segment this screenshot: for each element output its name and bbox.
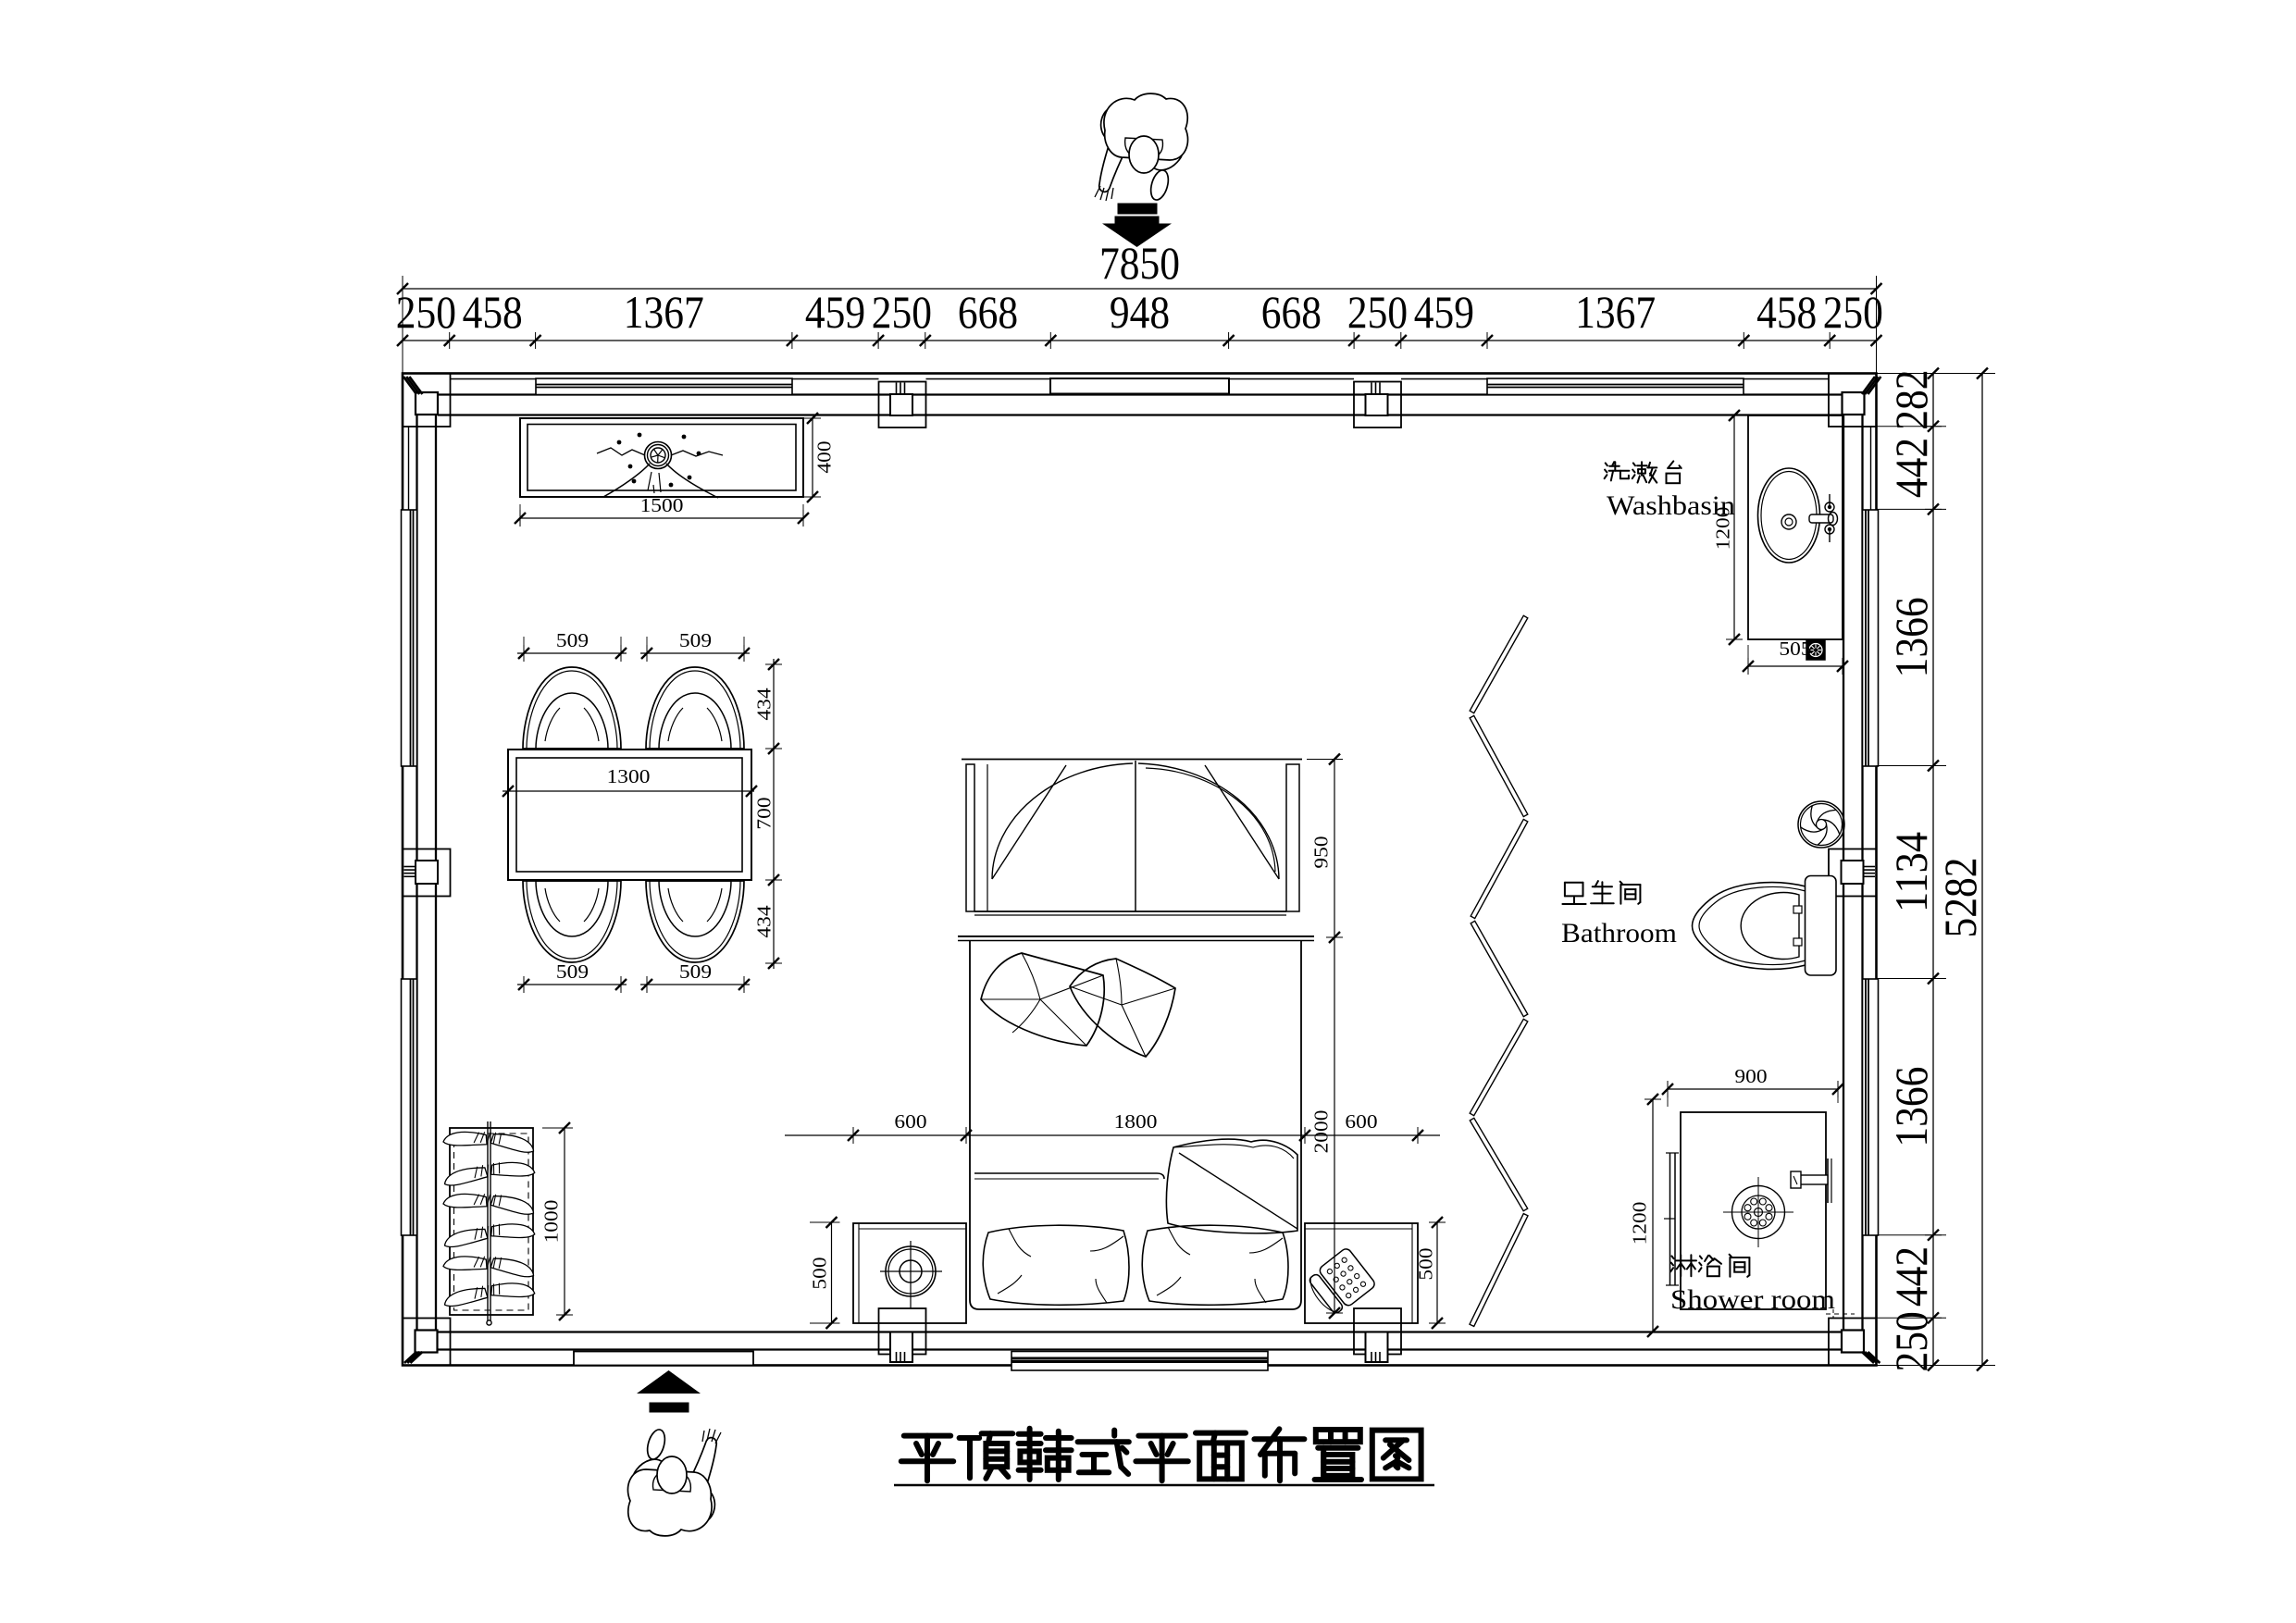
svg-text:509: 509 [679, 960, 712, 983]
svg-text:1300: 1300 [607, 765, 651, 787]
svg-text:500: 500 [809, 1257, 831, 1289]
svg-text:1200: 1200 [1629, 1202, 1651, 1245]
svg-text:282: 282 [1885, 370, 1937, 430]
svg-text:434: 434 [753, 688, 776, 721]
svg-text:950: 950 [1310, 836, 1333, 868]
svg-text:600: 600 [894, 1110, 926, 1133]
svg-text:459: 459 [1414, 286, 1474, 338]
svg-text:1367: 1367 [1575, 286, 1656, 338]
svg-text:Bathroom: Bathroom [1561, 918, 1677, 948]
svg-text:458: 458 [1756, 286, 1817, 338]
svg-text:700: 700 [753, 797, 776, 829]
svg-text:434: 434 [753, 905, 776, 938]
svg-text:250: 250 [396, 286, 456, 338]
svg-text:1000: 1000 [540, 1200, 563, 1244]
svg-text:458: 458 [463, 286, 523, 338]
svg-text:668: 668 [1261, 286, 1322, 338]
svg-text:509: 509 [556, 629, 589, 651]
svg-text:1500: 1500 [640, 494, 684, 516]
svg-text:1200: 1200 [1712, 507, 1734, 551]
svg-text:442: 442 [1885, 1246, 1937, 1307]
svg-text:459: 459 [805, 286, 865, 338]
svg-text:250: 250 [1823, 286, 1883, 338]
svg-text:1367: 1367 [624, 286, 704, 338]
svg-text:900: 900 [1734, 1065, 1767, 1087]
svg-text:1800: 1800 [1114, 1110, 1158, 1133]
svg-text:442: 442 [1885, 438, 1937, 498]
svg-text:948: 948 [1110, 286, 1170, 338]
svg-text:600: 600 [1345, 1110, 1377, 1133]
svg-text:509: 509 [679, 629, 712, 651]
svg-text:505: 505 [1779, 638, 1811, 660]
svg-text:1366: 1366 [1885, 1067, 1937, 1147]
svg-text:250: 250 [1347, 286, 1408, 338]
svg-text:509: 509 [556, 960, 589, 983]
svg-text:5282: 5282 [1934, 858, 1986, 938]
svg-text:Shower room: Shower room [1670, 1284, 1835, 1315]
svg-text:668: 668 [958, 286, 1018, 338]
svg-text:400: 400 [813, 440, 836, 473]
svg-text:2000: 2000 [1310, 1110, 1333, 1154]
svg-text:1134: 1134 [1885, 832, 1937, 912]
svg-text:1366: 1366 [1885, 597, 1937, 677]
svg-text:250: 250 [872, 286, 932, 338]
svg-text:250: 250 [1885, 1311, 1937, 1371]
svg-text:500: 500 [1415, 1247, 1437, 1280]
